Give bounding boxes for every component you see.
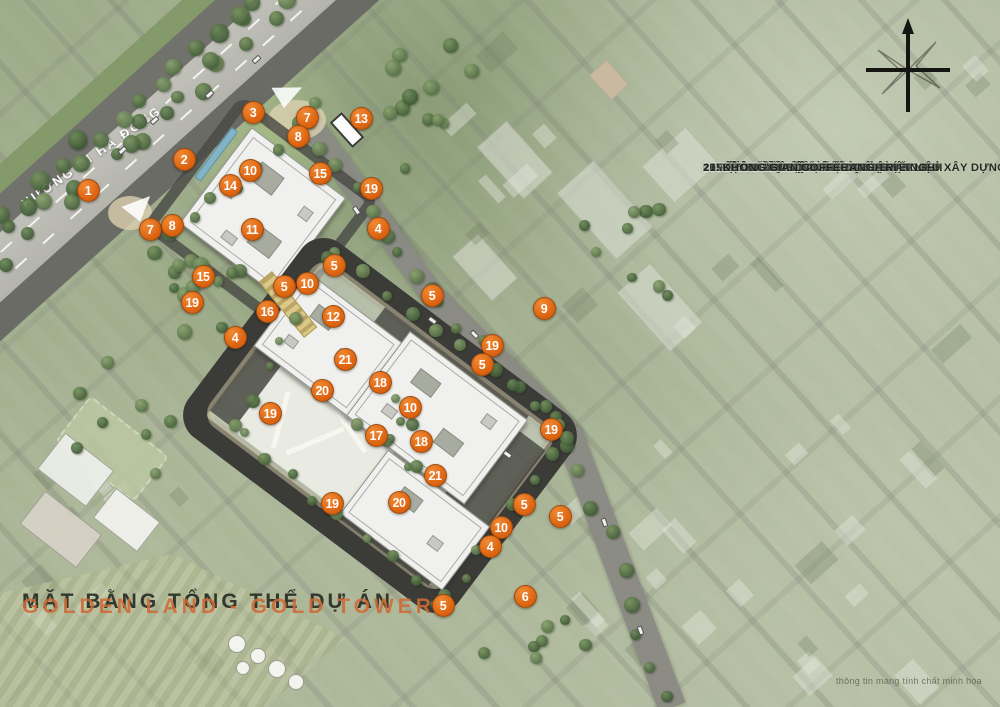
map-marker: 21	[334, 348, 357, 371]
map-marker: 19	[540, 418, 563, 441]
map-marker: 19	[321, 492, 344, 515]
map-marker: 15	[192, 265, 215, 288]
map-marker: 14	[219, 174, 242, 197]
map-marker: 5	[323, 254, 346, 277]
map-marker: 18	[410, 430, 433, 453]
project-name: GOLDEN LAND - GOLD TOWER	[22, 595, 435, 619]
map-marker: 2	[173, 148, 196, 171]
map-marker: 19	[181, 291, 204, 314]
map-marker: 3	[242, 101, 265, 124]
map-marker: 10	[239, 159, 262, 182]
map-marker: 10	[296, 272, 319, 295]
map-marker: 12	[322, 305, 345, 328]
map-marker: 8	[161, 214, 184, 237]
map-marker: 4	[224, 326, 247, 349]
site-plan-canvas: HƯỚNG ĐI HÀ ĐÔNG	[0, 0, 1000, 707]
map-marker: 5	[513, 493, 536, 516]
map-marker: 5	[549, 505, 572, 528]
map-marker: 4	[479, 535, 502, 558]
map-marker: 5	[273, 275, 296, 298]
map-marker: 4	[367, 217, 390, 240]
map-marker: 20	[311, 379, 334, 402]
map-marker: 21	[424, 464, 447, 487]
map-marker: 15	[309, 162, 332, 185]
map-marker: 13	[350, 107, 373, 130]
map-marker: 7	[139, 218, 162, 241]
map-marker: 18	[369, 371, 392, 394]
map-marker: 10	[399, 396, 422, 419]
map-marker: 16	[256, 300, 279, 323]
map-marker: 20	[388, 491, 411, 514]
map-marker: 19	[259, 402, 282, 425]
map-marker: 8	[287, 125, 310, 148]
map-marker: 9	[533, 297, 556, 320]
map-marker: 11	[241, 218, 264, 241]
legend-item: 21. KHÔNG GIAN COFFEE	[703, 160, 848, 177]
map-marker: 19	[360, 177, 383, 200]
map-marker: 5	[471, 353, 494, 376]
disclaimer-text: thông tin mang tính chất minh họa	[836, 676, 982, 686]
map-marker: 5	[421, 284, 444, 307]
map-marker: 5	[432, 594, 455, 617]
map-marker: 17	[365, 424, 388, 447]
map-marker: 1	[77, 179, 100, 202]
map-marker: 6	[514, 585, 537, 608]
